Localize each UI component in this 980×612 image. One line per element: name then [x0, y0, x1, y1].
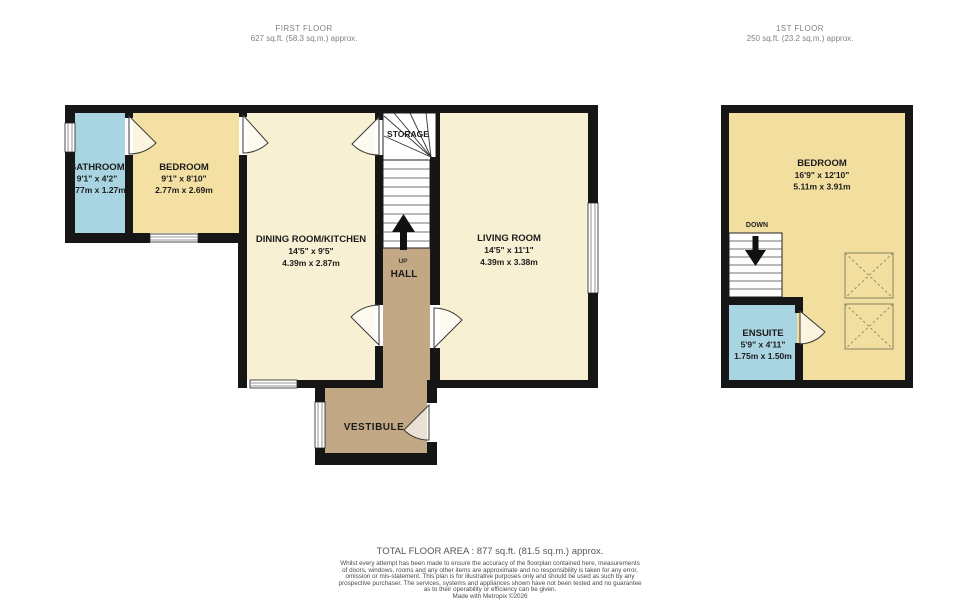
living-dims-m: 4.39m x 3.38m	[480, 257, 538, 267]
vestibule-label: VESTIBULE	[344, 422, 405, 433]
first-floor-area: 627 sq.ft. (58.3 sq.m.) approx.	[154, 34, 454, 44]
vestibule-window	[315, 402, 325, 448]
bedroom1-dims-m: 2.77m x 2.69m	[155, 185, 213, 195]
vestibule-room	[325, 388, 427, 453]
first-floor-plan: BATHROOM 9'1" x 4'2" 2.77m x 1.27m BEDRO…	[65, 105, 598, 465]
bedroom2-dims-m: 5.11m x 3.91m	[793, 182, 851, 192]
floorplan-drawing: BATHROOM 9'1" x 4'2" 2.77m x 1.27m BEDRO…	[0, 0, 980, 612]
dining-label: DINING ROOM/KITCHEN	[256, 234, 366, 245]
up-label: UP	[398, 258, 408, 265]
ensuite-dims-m: 1.75m x 1.50m	[734, 351, 792, 361]
bathroom-label: BATHROOM	[69, 162, 124, 173]
dining-window	[250, 380, 297, 388]
bathroom-dims-ft: 9'1" x 4'2"	[77, 174, 117, 184]
disclaimer: Whilst every attempt has been made to en…	[0, 561, 980, 600]
hall-label: HALL	[391, 269, 418, 280]
total-floor-area: TOTAL FLOOR AREA : 877 sq.ft. (81.5 sq.m…	[0, 546, 980, 557]
storage-label: STORAGE	[387, 129, 429, 139]
living-label: LIVING ROOM	[477, 233, 541, 244]
upper-floor-header: 1ST FLOOR 250 sq.ft. (23.2 sq.m.) approx…	[650, 24, 950, 43]
ensuite-label: ENSUITE	[742, 328, 783, 339]
bedroom2-dims-ft: 16'9" x 12'10"	[795, 170, 850, 180]
bedroom2-label: BEDROOM	[797, 158, 847, 169]
first-floor-header: FIRST FLOOR 627 sq.ft. (58.3 sq.m.) appr…	[154, 24, 454, 43]
ensuite-dims-ft: 5'9" x 4'11"	[741, 340, 786, 350]
floorplan-page: FIRST FLOOR 627 sq.ft. (58.3 sq.m.) appr…	[0, 0, 980, 612]
upper-floor-area: 250 sq.ft. (23.2 sq.m.) approx.	[650, 34, 950, 44]
bedroom1-window	[150, 234, 198, 242]
down-label: DOWN	[746, 222, 768, 229]
upper-floor-plan: BEDROOM 16'9" x 12'10" 5.11m x 3.91m DOW…	[721, 105, 913, 388]
bedroom1-label: BEDROOM	[159, 162, 209, 173]
living-room-window	[588, 203, 598, 293]
upper-floor-title: 1ST FLOOR	[650, 24, 950, 34]
credit-line: Made with Metropix ©2026	[0, 594, 980, 601]
bedroom1-dims-ft: 9'1" x 8'10"	[161, 174, 206, 184]
dining-dims-ft: 14'5" x 9'5"	[288, 246, 333, 256]
footer: TOTAL FLOOR AREA : 877 sq.ft. (81.5 sq.m…	[0, 546, 980, 600]
hall-room	[383, 248, 430, 380]
dining-dims-m: 4.39m x 2.87m	[282, 258, 340, 268]
living-dims-ft: 14'5" x 11'1"	[484, 245, 533, 255]
first-floor-title: FIRST FLOOR	[154, 24, 454, 34]
bathroom-window	[65, 123, 75, 152]
bathroom-dims-m: 2.77m x 1.27m	[68, 185, 126, 195]
